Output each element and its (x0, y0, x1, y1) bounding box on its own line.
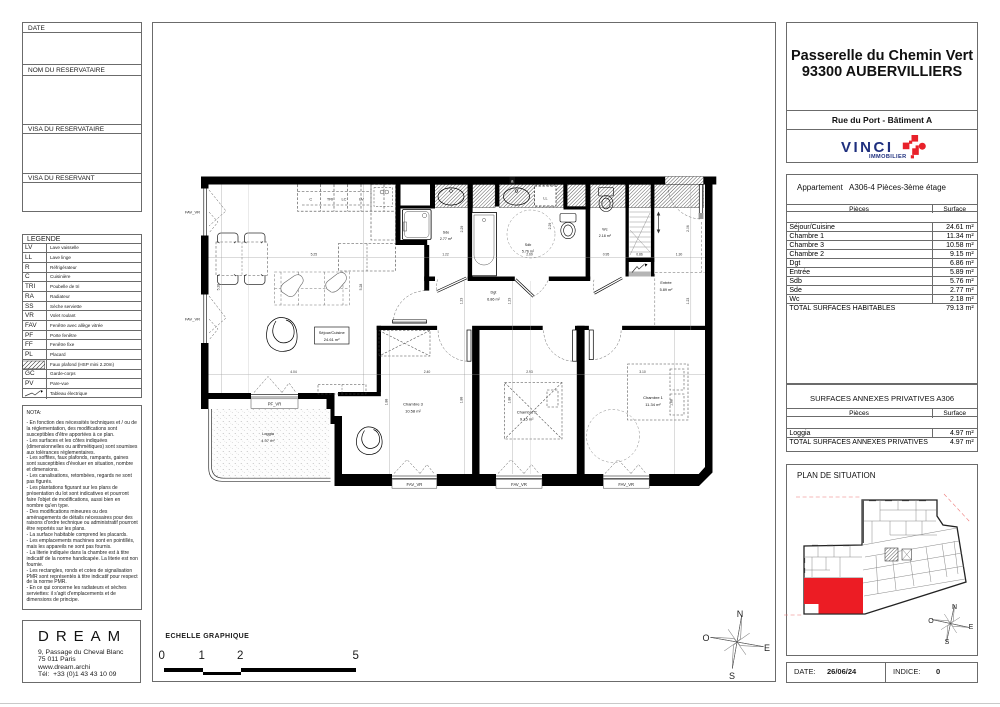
svg-text:S: S (945, 639, 950, 646)
svg-text:1.88: 1.88 (385, 399, 389, 406)
svg-text:5.28: 5.28 (217, 284, 221, 291)
svg-text:0.95: 0.95 (603, 253, 610, 257)
svg-text:FAV_VR: FAV_VR (407, 482, 423, 487)
svg-text:O: O (702, 633, 709, 643)
svg-text:1.88: 1.88 (508, 397, 512, 404)
svg-text:1.23: 1.23 (508, 298, 512, 305)
svg-text:Loggia: Loggia (262, 431, 275, 436)
svg-text:1.22: 1.22 (442, 253, 449, 257)
svg-text:N: N (737, 609, 744, 619)
svg-text:1.23: 1.23 (686, 298, 690, 305)
svg-text:2.06: 2.06 (686, 225, 690, 232)
svg-text:1.88: 1.88 (460, 397, 464, 404)
svg-text:Entrée: Entrée (660, 281, 671, 285)
svg-text:Sdb: Sdb (525, 243, 531, 247)
svg-text:FAV_VR: FAV_VR (618, 482, 634, 487)
svg-text:E: E (969, 624, 974, 631)
svg-text:Chambre 2: Chambre 2 (517, 410, 538, 415)
svg-text:2.29: 2.29 (548, 223, 552, 230)
svg-text:3.10: 3.10 (639, 370, 646, 374)
svg-text:C: C (309, 197, 312, 202)
svg-text:5.89 m²: 5.89 m² (660, 288, 674, 292)
svg-text:6.86 m²: 6.86 m² (487, 298, 501, 302)
svg-text:Sde: Sde (443, 231, 449, 235)
svg-text:E: E (764, 643, 770, 653)
svg-text:2.69: 2.69 (526, 253, 533, 257)
svg-text:4.04: 4.04 (290, 370, 297, 374)
svg-text:LC: LC (342, 197, 347, 202)
svg-text:2.93: 2.93 (526, 370, 533, 374)
svg-text:Dgt: Dgt (491, 291, 498, 295)
svg-text:Wc: Wc (602, 228, 607, 232)
svg-text:11.34 m²: 11.34 m² (645, 402, 661, 407)
svg-text:S: S (729, 671, 735, 681)
svg-text:1.23: 1.23 (460, 298, 464, 305)
svg-text:O: O (928, 618, 934, 625)
svg-text:FAV_VR: FAV_VR (185, 317, 200, 322)
svg-text:TRI: TRI (327, 197, 333, 202)
svg-text:5.25: 5.25 (311, 253, 318, 257)
svg-text:Chambre 1: Chambre 1 (643, 395, 664, 400)
svg-text:LV: LV (359, 197, 364, 202)
svg-text:Séjour/Cuisine: Séjour/Cuisine (319, 330, 346, 335)
svg-text:1.88: 1.88 (670, 399, 674, 406)
svg-text:2.40: 2.40 (424, 370, 431, 374)
svg-text:0.86: 0.86 (636, 253, 643, 257)
svg-text:Chambre 3: Chambre 3 (403, 402, 424, 407)
svg-text:LL: LL (543, 197, 547, 201)
svg-text:5.28: 5.28 (359, 284, 363, 291)
svg-text:FAV_VR: FAV_VR (185, 210, 200, 215)
svg-text:FAV_VR: FAV_VR (511, 482, 527, 487)
svg-text:4.97 m²: 4.97 m² (261, 438, 275, 443)
svg-text:PF_VR: PF_VR (268, 402, 282, 407)
svg-text:2.29: 2.29 (460, 226, 464, 233)
svg-text:N: N (952, 604, 957, 611)
svg-text:1.30: 1.30 (676, 253, 683, 257)
svg-text:2.77 m²: 2.77 m² (440, 237, 453, 241)
svg-text:10.58 m²: 10.58 m² (405, 409, 421, 414)
svg-text:24.61 m²: 24.61 m² (324, 337, 340, 342)
svg-text:2.18 m²: 2.18 m² (599, 234, 612, 238)
svg-text:9.15 m²: 9.15 m² (520, 417, 534, 422)
